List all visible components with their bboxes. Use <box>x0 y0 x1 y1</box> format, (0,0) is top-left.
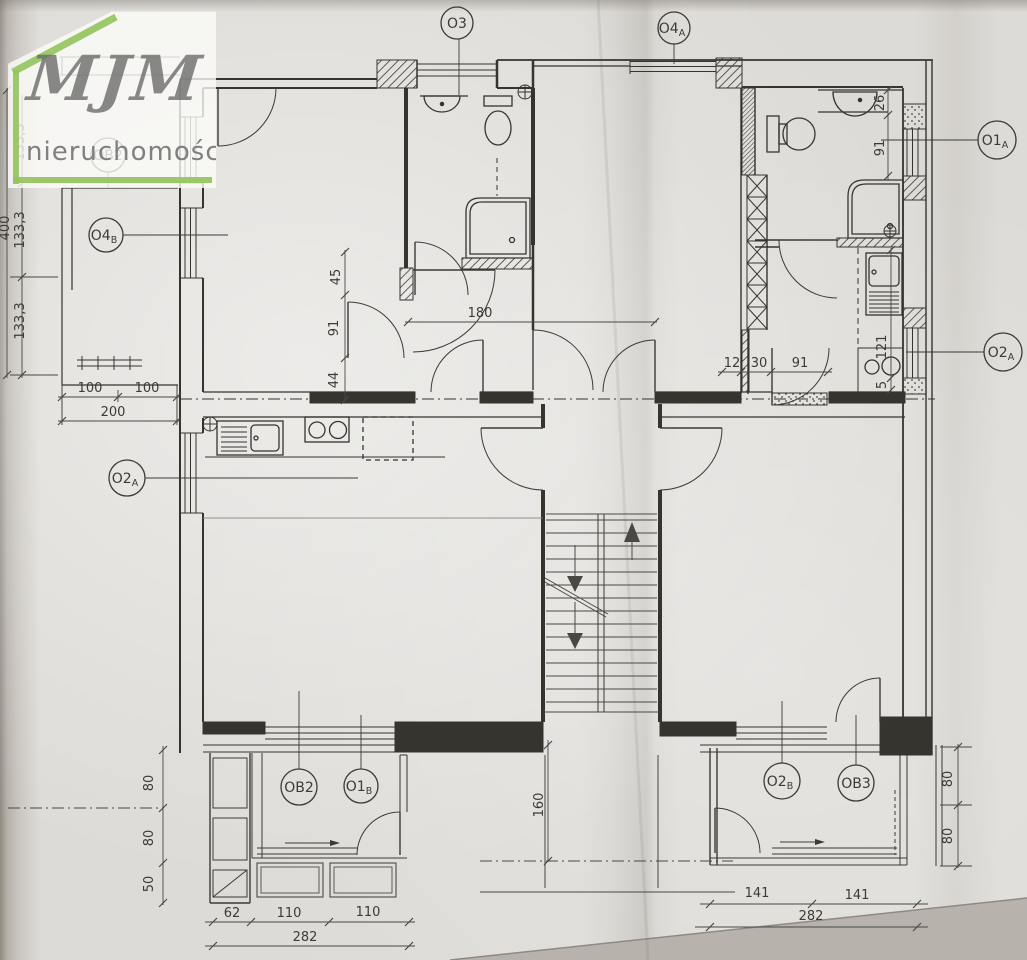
dim-282-left: 282 <box>293 930 318 945</box>
room-label-o3: O3 <box>441 7 473 95</box>
balcony-left <box>210 753 407 903</box>
kitchen-sink-left <box>217 421 283 455</box>
dim-91-mid: 91 <box>327 320 342 337</box>
dim-100-a: 100 <box>78 381 103 396</box>
svg-text:OB3: OB3 <box>841 776 871 792</box>
dim-133-3-b: 133,3 <box>13 302 28 339</box>
room-label-o2a-right: O2A <box>906 333 1022 371</box>
dim-141-b: 141 <box>845 888 870 903</box>
room-label-o2b: O2B <box>764 701 800 799</box>
dim-44: 44 <box>327 372 342 389</box>
scanned-floorplan-page: 133,3 400 133,3 133,3 100 100 200 45 91 … <box>0 0 1027 960</box>
logo-subtitle: nieruchomości <box>26 137 229 167</box>
windows <box>180 60 926 812</box>
room-label-ob2-bottom: OB2 <box>281 691 317 805</box>
svg-text:O2A: O2A <box>988 345 1015 363</box>
room-label-o4b: O4B <box>89 218 228 252</box>
dim-133-3-a: 133,3 <box>13 211 28 248</box>
svg-text:O3: O3 <box>447 16 467 32</box>
outlet-symbols <box>203 85 896 431</box>
dim-80-br-a: 80 <box>941 771 956 788</box>
dim-91-right-mid: 91 <box>792 356 809 371</box>
room-labels: OB2 O4B O3 O4A O1A O2A <box>89 7 1022 805</box>
stove-left <box>305 417 349 442</box>
dim-100-b: 100 <box>135 381 160 396</box>
dim-110-a: 110 <box>277 906 302 921</box>
dim-80-bl-a: 80 <box>142 775 157 792</box>
room-label-o4a: O4A <box>658 12 690 64</box>
shower-right <box>848 180 903 238</box>
svg-text:O1A: O1A <box>982 133 1009 151</box>
appliance-dashed <box>363 417 413 460</box>
dim-141-a: 141 <box>745 886 770 901</box>
dim-121: 121 <box>875 335 890 360</box>
dim-45: 45 <box>329 269 344 286</box>
dim-160: 160 <box>532 793 547 818</box>
dim-12: 12 <box>724 356 741 371</box>
dim-110-b: 110 <box>356 905 381 920</box>
dim-282-right: 282 <box>799 909 824 924</box>
doors <box>218 88 880 855</box>
svg-text:O2A: O2A <box>112 471 139 489</box>
dim-5: 5 <box>875 381 890 389</box>
room-label-o1b: O1B <box>344 715 378 803</box>
dim-180: 180 <box>468 306 493 321</box>
toilet-right <box>767 116 815 152</box>
toilet-left <box>484 96 512 145</box>
dim-80-br-b: 80 <box>941 828 956 845</box>
dim-50: 50 <box>142 876 157 893</box>
wall-blocks <box>377 58 926 405</box>
dim-30: 30 <box>751 356 768 371</box>
dim-91-right-top: 91 <box>873 140 888 157</box>
dim-26: 26 <box>873 95 888 112</box>
shower-left <box>466 198 530 258</box>
kitchen-sink-right <box>866 253 902 315</box>
svg-text:O4A: O4A <box>659 21 686 39</box>
dim-62: 62 <box>224 906 241 921</box>
svg-text:OB2: OB2 <box>284 780 314 796</box>
logo-title: MJM <box>24 42 207 115</box>
svg-text:O2B: O2B <box>767 774 793 792</box>
room-label-o2a-left: O2A <box>109 460 358 496</box>
dim-200: 200 <box>101 405 126 420</box>
room-label-o1a: O1A <box>881 121 1016 159</box>
bathroom-sink-left <box>420 96 468 112</box>
svg-text:O4B: O4B <box>91 228 117 246</box>
room-label-ob3: OB3 <box>838 715 874 801</box>
dim-400: 400 <box>0 216 13 241</box>
staircase <box>543 514 660 712</box>
svg-text:O1B: O1B <box>346 779 372 797</box>
dimension-texts: 133,3 400 133,3 133,3 100 100 200 45 91 … <box>0 95 956 945</box>
dim-80-bl-b: 80 <box>142 830 157 847</box>
